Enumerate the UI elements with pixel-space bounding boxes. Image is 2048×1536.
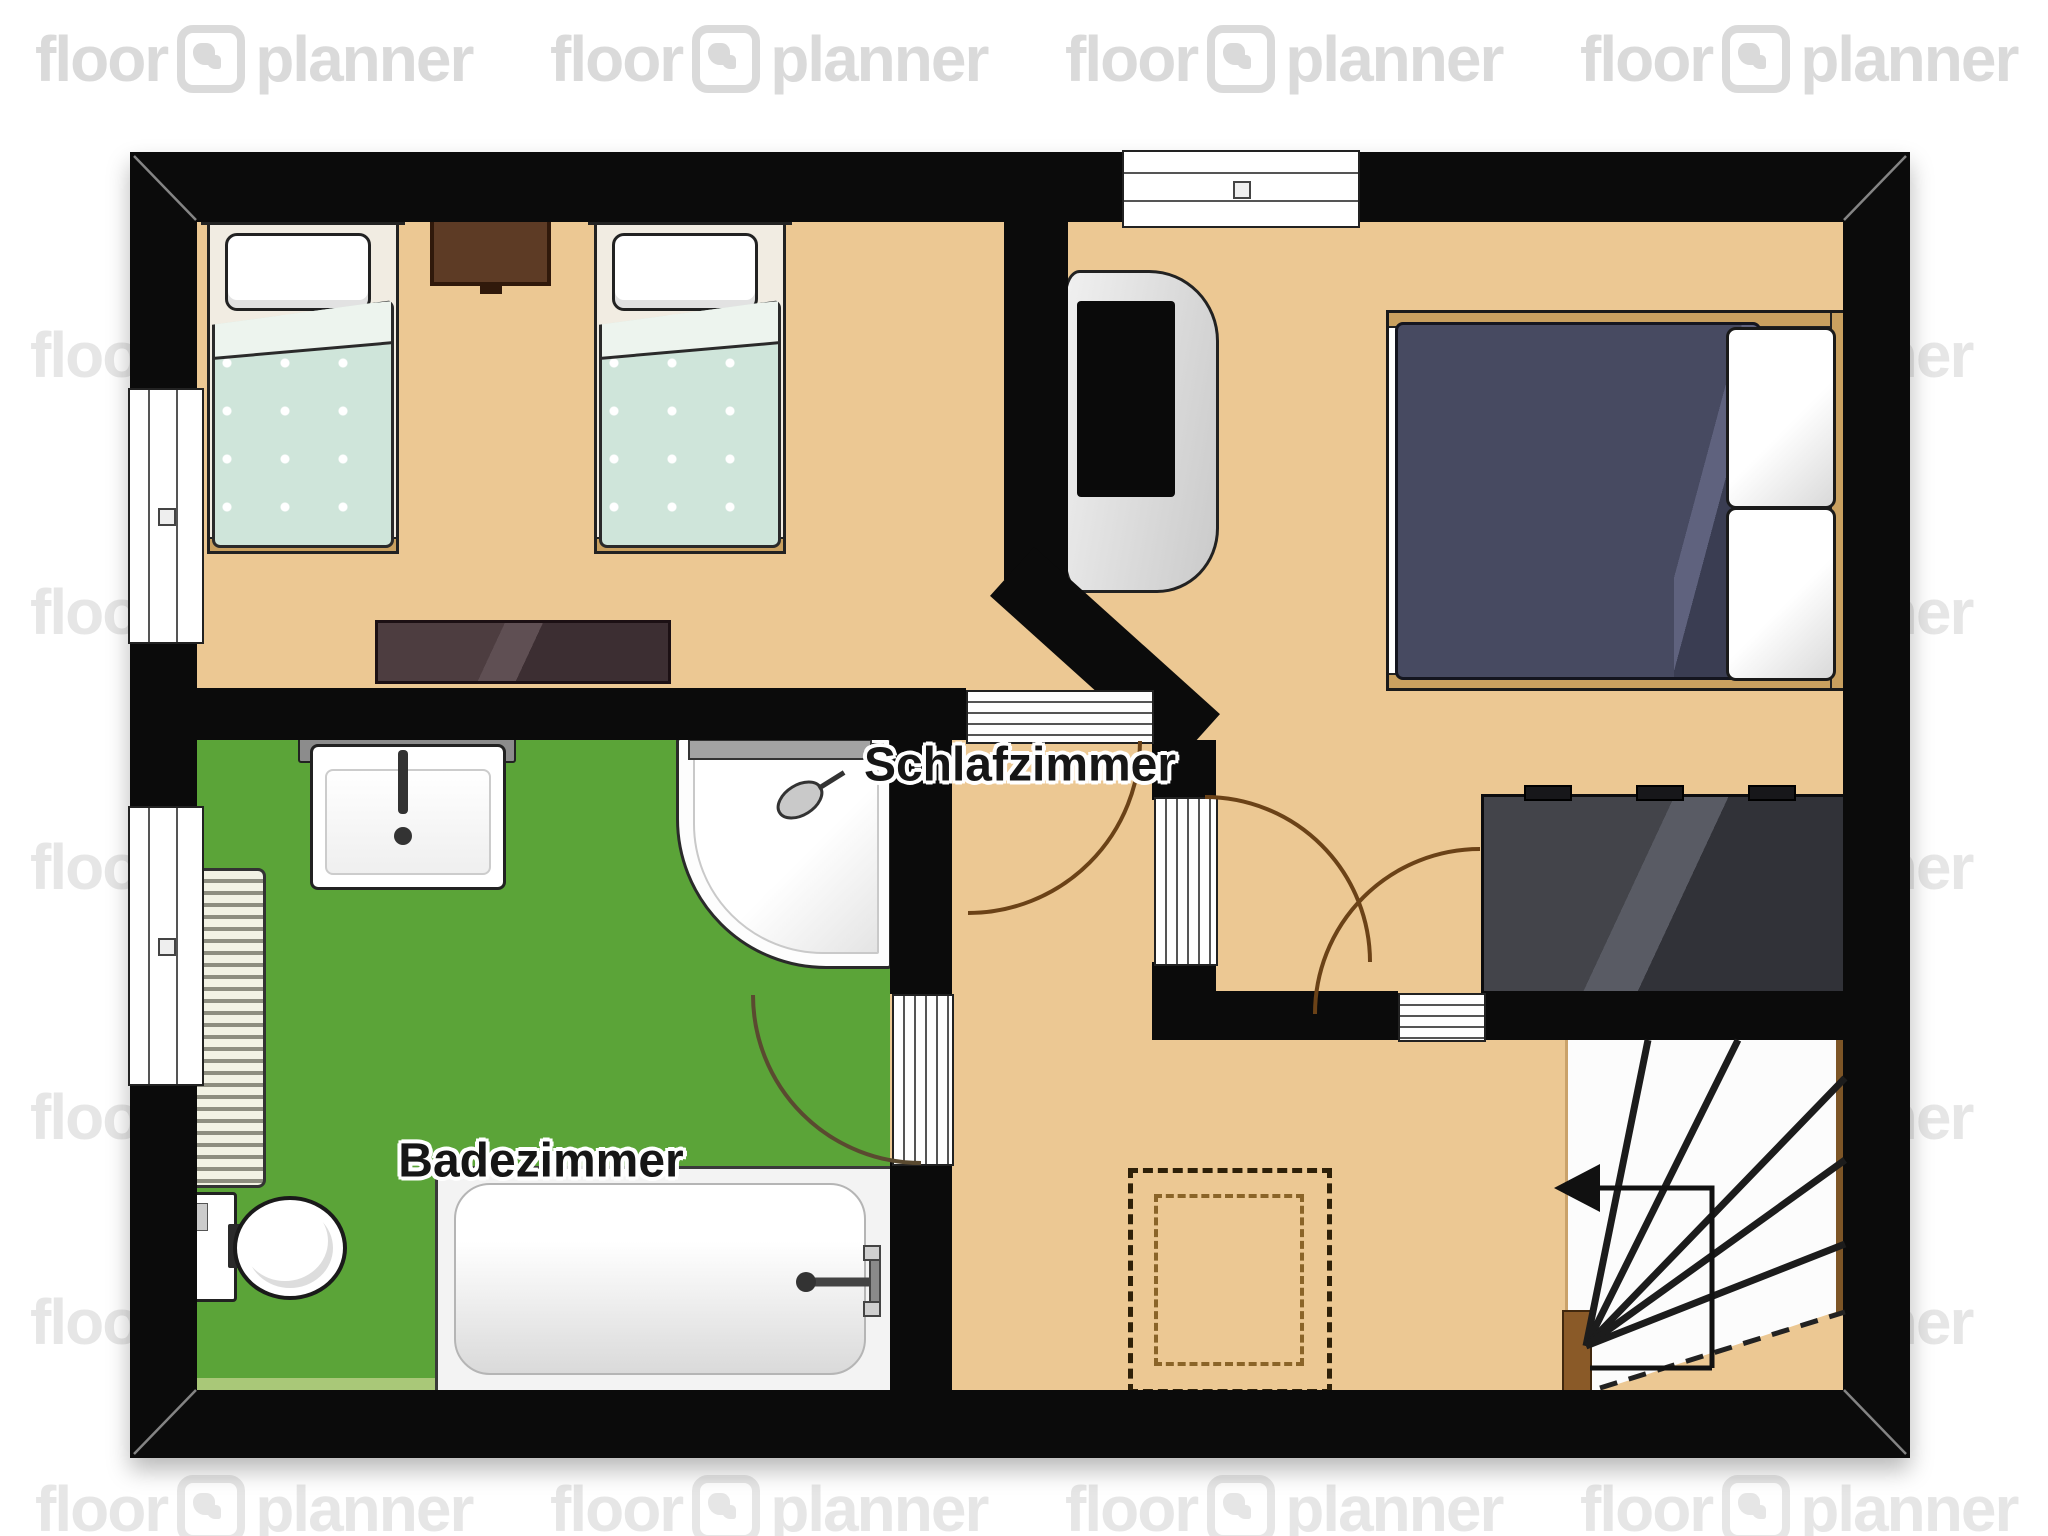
watermark: floorplanner bbox=[35, 22, 472, 96]
floorplanner-logo-icon bbox=[1207, 25, 1275, 93]
dresser bbox=[1481, 794, 1849, 994]
floorplanner-logo-icon bbox=[692, 25, 760, 93]
watermark: floorplanner bbox=[1580, 1472, 2017, 1536]
door-bedroom-west bbox=[1154, 797, 1218, 966]
watermark: floorplanner bbox=[1065, 22, 1502, 96]
watermark: floorplanner bbox=[1065, 1472, 1502, 1536]
watermark: floorplanner bbox=[550, 1472, 987, 1536]
door-bathroom bbox=[892, 994, 954, 1166]
watermark-word: planner bbox=[255, 22, 472, 96]
shower-rail bbox=[688, 739, 872, 760]
window-left-upper bbox=[128, 388, 204, 644]
wall-hall-bedroom-lower bbox=[1152, 962, 1216, 1040]
single-bed-left-pillow bbox=[225, 233, 371, 311]
bathtub-basin bbox=[454, 1183, 866, 1375]
wall-outer-top bbox=[130, 152, 1910, 222]
dresser-handle bbox=[1524, 785, 1572, 801]
sideboard bbox=[375, 620, 671, 684]
room-label-schlafzimmer: Schlafzimmer bbox=[864, 738, 1176, 793]
floorplanner-logo-icon bbox=[692, 1475, 760, 1536]
single-bed-right-pillow bbox=[612, 233, 758, 311]
wall-bedroom-divider bbox=[1004, 222, 1068, 580]
wall-bathroom-right-lower bbox=[890, 1162, 952, 1390]
tv-screen bbox=[1077, 301, 1175, 497]
wall-bedroom-bottom-left bbox=[1216, 991, 1398, 1040]
floor-void-marker-inner bbox=[1154, 1194, 1304, 1366]
window-top bbox=[1122, 150, 1360, 228]
stair-newel-post bbox=[1562, 1310, 1592, 1394]
double-bed-duvet bbox=[1395, 322, 1761, 680]
double-bed-pillow-bottom bbox=[1726, 507, 1836, 681]
room-label-badezimmer: Badezimmer bbox=[398, 1134, 683, 1189]
wall-bedroom-bottom-right bbox=[1482, 991, 1843, 1040]
watermark-word: floor bbox=[35, 22, 167, 96]
sink bbox=[310, 744, 506, 890]
floorplanner-logo-icon bbox=[177, 25, 245, 93]
floorplanner-logo-icon bbox=[1722, 1475, 1790, 1536]
watermark: floorplanner bbox=[550, 22, 987, 96]
single-bed-right-blanket bbox=[599, 300, 781, 548]
floorplanner-logo-icon bbox=[177, 1475, 245, 1536]
dresser-handle bbox=[1748, 785, 1796, 801]
floorplanner-logo-icon bbox=[1722, 25, 1790, 93]
wall-outer-left bbox=[130, 152, 197, 1458]
watermark: floorplanner bbox=[35, 1472, 472, 1536]
single-bed-left-blanket bbox=[212, 300, 394, 548]
wall-outer-bottom bbox=[130, 1390, 1910, 1458]
double-bed-pillow-top bbox=[1726, 327, 1836, 509]
window-left-lower bbox=[128, 806, 204, 1086]
floorplan-image: floorplanner floorplanner floorplanner f… bbox=[0, 0, 2048, 1536]
watermark: floorplanner bbox=[1580, 22, 2017, 96]
wall-outer-right bbox=[1843, 152, 1910, 1458]
wall-bathroom-top bbox=[130, 688, 966, 740]
floorplanner-logo-icon bbox=[1207, 1475, 1275, 1536]
dresser-handle bbox=[1636, 785, 1684, 801]
toilet-bowl bbox=[233, 1196, 347, 1300]
bathtub bbox=[435, 1166, 894, 1394]
door-bedroom-south bbox=[1398, 993, 1486, 1042]
door-kidsroom-hall bbox=[966, 690, 1154, 744]
